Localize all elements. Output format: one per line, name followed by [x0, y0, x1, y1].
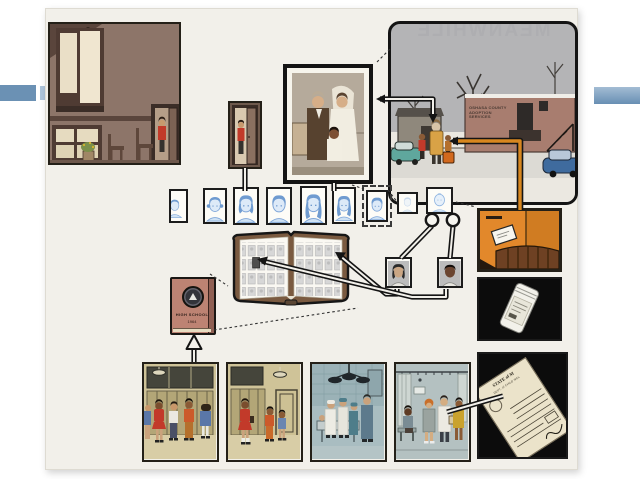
- highlighted-yearbook-photo: [253, 258, 260, 269]
- state-document: STATE of M DEPT. of CHILD WEL: [477, 357, 568, 459]
- portrait-photo-6: [332, 187, 356, 224]
- panel-pill-bottle: [477, 277, 562, 341]
- hospital-room-art: [396, 364, 468, 459]
- accent-bar-left: [0, 85, 36, 101]
- panel-delivery-room: [310, 362, 387, 462]
- mail-slot: [486, 216, 502, 219]
- bare-tree-small-right: [547, 62, 563, 94]
- panel-family-portrait: [283, 64, 373, 184]
- panel-hospital-room: [394, 362, 471, 462]
- armchair: [496, 246, 559, 269]
- portrait-photo-2: [203, 188, 227, 224]
- accent-bar-right: [594, 87, 640, 104]
- school-hallway-1-art: [144, 364, 216, 459]
- panel-apartment-interior: [48, 22, 181, 165]
- plant: [81, 142, 95, 162]
- adoption-sign-line3: SERVICES: [469, 115, 515, 120]
- panel-hall-doorway: [228, 101, 262, 169]
- panel-mail-delivery: [477, 208, 562, 272]
- signature: [544, 424, 565, 440]
- photo-birth-father: [437, 257, 463, 288]
- photo-birth-mother: [385, 257, 412, 288]
- mail-delivery-art: [480, 211, 559, 269]
- portrait-photo-8: [397, 192, 418, 214]
- hall-doorway-art: [230, 103, 260, 167]
- open-yearbook-art: [228, 230, 354, 308]
- portrait-photo-7-dashed-highlight: [362, 185, 392, 227]
- panel-birth-record: STATE of M DEPT. of CHILD WEL: [477, 352, 568, 459]
- agency-building: [465, 94, 575, 152]
- yearbook-year: 1964: [172, 319, 212, 324]
- panel-school-hallway-2: [226, 362, 303, 462]
- portrait-photo-4: [266, 187, 292, 225]
- ceiling-lamp: [153, 370, 166, 376]
- apartment-interior-art: [50, 24, 179, 163]
- screenshot-root: { "slide": { "background": "#ffffff", "a…: [0, 0, 640, 479]
- presentation-slide: MEANWHILE: [0, 0, 640, 479]
- pill-bottle-art: [479, 279, 560, 339]
- panel-yearbook-cover: HIGH SCHOOL 1964: [170, 277, 216, 335]
- family-portrait-art: [292, 73, 364, 175]
- yearbook-emblem-icon: [182, 286, 204, 308]
- portrait-photo-3: [233, 187, 259, 225]
- orange-suitcase: [443, 152, 454, 163]
- left-page-photo-grid: [242, 242, 286, 296]
- yearbook-spine: [208, 279, 214, 333]
- ceiling-lamp: [274, 372, 287, 378]
- doorway-with-figure: [151, 104, 179, 163]
- yearbook-title: HIGH SCHOOL: [172, 312, 212, 317]
- document-fields: [477, 357, 568, 459]
- delivery-room-art: [312, 364, 384, 459]
- right-page-photo-grid: [296, 242, 340, 296]
- school-hallway-2-art: [228, 364, 300, 459]
- panel-school-hallway-1: [142, 362, 219, 462]
- panel-open-yearbook: [228, 230, 354, 308]
- yearbook-page-edges: [173, 328, 211, 332]
- sink: [414, 387, 425, 394]
- adoption-sign: OSHASA COUNTY ADOPTION SERVICES: [469, 106, 515, 120]
- portrait-photo-5: [300, 186, 327, 225]
- portrait-photo-1: [169, 189, 188, 223]
- portrait-photo-9-baby: [426, 187, 453, 214]
- panel-adoption-agency: MEANWHILE: [388, 21, 578, 205]
